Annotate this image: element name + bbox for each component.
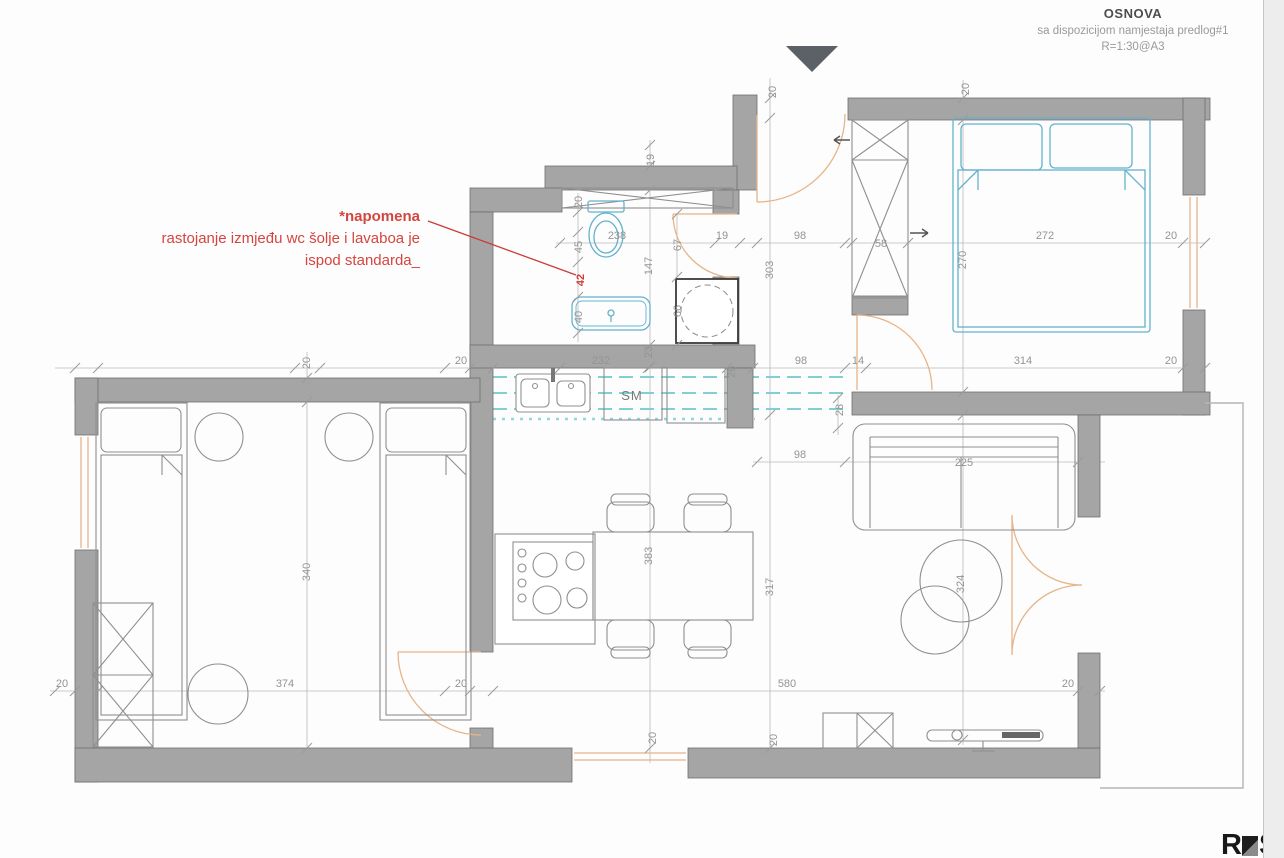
chair [607, 620, 654, 658]
dim-label: 19 [716, 230, 728, 242]
door-bedroom2-icon [398, 652, 481, 735]
tv-stand [823, 713, 893, 748]
double-bed [953, 118, 1150, 332]
dim-label: 98 [794, 230, 806, 242]
dim-label: 272 [1036, 230, 1054, 242]
wall-wardrobe-cap [852, 296, 908, 315]
wall-bath-top-right [545, 166, 737, 190]
page-edge-strip [1263, 0, 1284, 858]
wall-top [848, 98, 1210, 120]
dim-label: 303 [764, 261, 776, 279]
dining-table [593, 532, 753, 620]
wall-living-right-top [1078, 415, 1100, 517]
dim-label: 28 [834, 404, 846, 416]
arrow-right-icon [910, 229, 928, 237]
dim-label: 20 [455, 678, 467, 690]
drawing-scale: R=1:30@A3 [1003, 39, 1263, 55]
dim-label: 383 [643, 547, 655, 565]
note-heading: *napomena [88, 206, 420, 228]
dim-label: 20 [1165, 230, 1177, 242]
dim-label: 20 [455, 355, 467, 367]
dim-label: 98 [795, 355, 807, 367]
kitchen-sink [516, 368, 590, 412]
dim-label: 20 [768, 734, 780, 746]
single-bed-left [96, 403, 187, 720]
wall-bath-top-left [470, 188, 562, 212]
dim-label: 238 [608, 230, 626, 242]
faucet-icon [551, 368, 555, 382]
balcony-outline [1100, 403, 1243, 788]
dim-label: 317 [764, 578, 776, 596]
washing-machine-label: SM [621, 388, 643, 403]
dim-label: 19 [645, 154, 657, 166]
toilet [588, 201, 624, 257]
note-leader-line [428, 221, 576, 275]
entrance-arrow-icon [786, 46, 838, 72]
dining-set [593, 494, 753, 658]
floor-plan-sheet: OSNOVA sa dispozicijom namjestaja predlo… [0, 0, 1284, 858]
dim-label: 66 [672, 305, 684, 317]
direction-arrows [834, 136, 928, 237]
wall-bottom-right [688, 748, 1100, 778]
dim-label-red: 42 [575, 274, 587, 286]
tv-screen-icon [1002, 732, 1040, 738]
note-line-1: rastojanje izmjeđu wc šolje i lavaboa je [88, 228, 420, 250]
dim-label: 324 [955, 575, 967, 593]
dim-label: 374 [276, 678, 294, 690]
wardrobe-bedroom2 [93, 603, 153, 747]
door-bedroom-icon [857, 315, 932, 390]
door-balcony-bottom-icon [1012, 585, 1082, 655]
dim-label: 67 [672, 239, 684, 251]
floor-plan-drawing: 238 19 98 58 272 20 20 232 98 14 314 20 … [0, 0, 1284, 858]
dim-label: 26 [726, 366, 738, 378]
dim-label: 314 [1014, 355, 1032, 367]
dim-label: 340 [301, 563, 313, 581]
dim-label: 58 [875, 238, 887, 250]
dim-label: 98 [794, 449, 806, 461]
dim-label: 147 [643, 257, 655, 275]
wall-left-top [75, 378, 98, 435]
dim-label: 20 [1165, 355, 1177, 367]
annotation-note: *napomena rastojanje izmjeđu wc šolje i … [88, 206, 420, 271]
dim-label: 270 [957, 251, 969, 269]
dim-label: 20 [573, 196, 585, 208]
wall-middle-vertical [470, 212, 493, 652]
dim-label: 20 [301, 357, 313, 369]
note-line-2: ispod standarda_ [88, 250, 420, 272]
single-bed-right [380, 403, 471, 720]
dim-label: 20 [767, 86, 779, 98]
logo-square-icon [1242, 836, 1258, 856]
wall-living-right-bottom [1078, 653, 1100, 748]
dim-label: 20 [56, 678, 68, 690]
dim-label: 225 [955, 457, 973, 469]
chair [607, 494, 654, 532]
dim-label: 45 [573, 241, 585, 253]
coffee-tables [901, 540, 1002, 654]
dim-label: 20 [647, 732, 659, 744]
dim-label: 20 [960, 83, 972, 95]
drawing-title: OSNOVA [1003, 5, 1263, 23]
title-block: OSNOVA sa dispozicijom namjestaja predlo… [1003, 5, 1263, 55]
dim-label: 580 [778, 678, 796, 690]
dim-label: 20 [1062, 678, 1074, 690]
dim-label: 23 [643, 346, 655, 358]
wall-bedroom-right-top [1183, 98, 1205, 195]
dimension-ticks [50, 93, 1210, 753]
wall-bath-bottom [470, 345, 755, 368]
logo-prefix: R [1221, 829, 1241, 858]
door-balcony-top-icon [1012, 515, 1082, 585]
dim-label: 40 [573, 311, 585, 323]
dim-label: 14 [852, 355, 864, 367]
sofa [853, 424, 1075, 530]
wall-bottom-left [75, 748, 572, 782]
wall-bath-right-top [713, 190, 739, 214]
drawing-subtitle: sa dispozicijom namjestaja predlog#1 [1003, 23, 1263, 39]
stove [495, 534, 595, 644]
chair [684, 494, 731, 532]
shower [676, 279, 738, 343]
wall-bedroom2-top [75, 378, 480, 402]
windows [81, 197, 1197, 760]
wardrobe-hall [852, 120, 908, 298]
wall-bedroom-bottom [852, 392, 1210, 415]
chair [684, 620, 731, 658]
dim-label: 232 [592, 355, 610, 367]
